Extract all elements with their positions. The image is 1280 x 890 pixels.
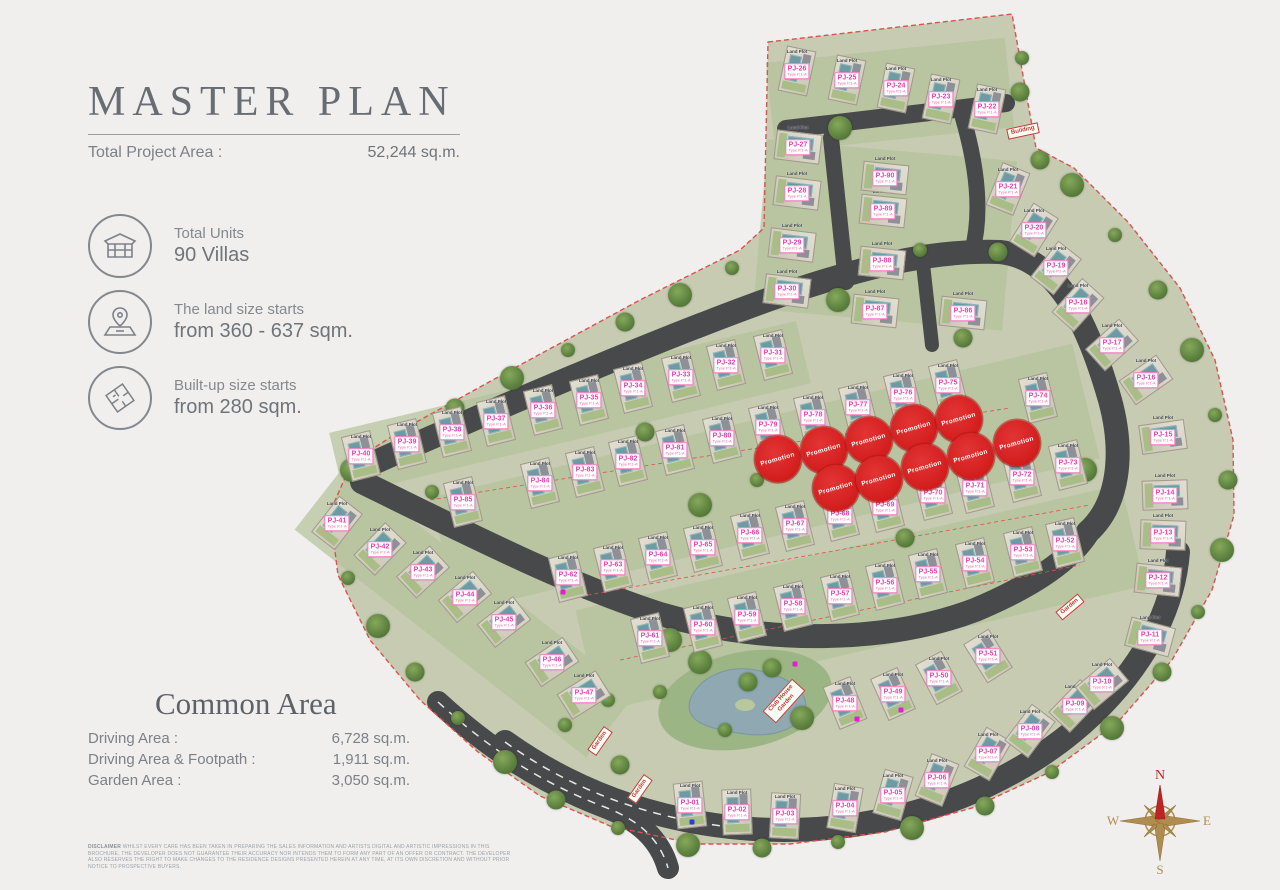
plot-type: Type P.1-A — [533, 411, 552, 416]
land-plot-caption: Land Plot — [865, 289, 886, 294]
lawn-icon — [971, 118, 996, 131]
plot-label: PJ-87Type P.1-A — [862, 303, 887, 319]
plot-label: PJ-81Type P.1-A — [662, 442, 687, 458]
plot-type: Type P.1-A — [1013, 553, 1032, 558]
title-divider — [88, 134, 460, 135]
lawn-icon — [830, 818, 855, 830]
land-plot-caption: Land Plot — [875, 563, 896, 568]
tree-icon — [1149, 281, 1168, 300]
plot-label: PJ-13Type P.1-A — [1150, 527, 1175, 543]
stat-built-up: Built-up size starts from 280 sqm. — [88, 366, 302, 430]
tree-icon — [1011, 83, 1030, 102]
plot-type: Type P.1-A — [1065, 707, 1084, 712]
plot-label: PJ-86Type P.1-A — [950, 305, 975, 321]
house-icon — [88, 214, 152, 278]
land-plot-caption: Land Plot — [787, 171, 808, 176]
land-plot-caption: Land Plot — [938, 363, 959, 368]
common-area-heading: Common Area — [155, 686, 337, 722]
common-area-row: Garden Area : 3,050 sq.m. — [88, 772, 410, 789]
plot-type: Type P.1-A — [574, 696, 593, 701]
land-plot-caption: Land Plot — [1055, 521, 1076, 526]
plot-type: Type P.1-A — [740, 536, 759, 541]
plot-type: Type P.1-A — [542, 663, 561, 668]
plot-type: Type P.1-A — [875, 508, 894, 513]
stat-value: from 280 sqm. — [174, 396, 302, 419]
plot-label: PJ-07Type P.1-A — [975, 746, 1000, 762]
plot-label: PJ-71Type P.1-A — [962, 480, 987, 496]
plot-type: Type P.1-A — [785, 527, 804, 532]
plot-label: PJ-78Type P.1-A — [800, 409, 825, 425]
plot-label: PJ-26Type P.1-A — [784, 63, 809, 79]
tree-icon — [831, 835, 845, 849]
tree-icon — [739, 673, 758, 692]
stat-label: Total Units — [174, 225, 249, 242]
land-plot-caption: Land Plot — [693, 525, 714, 530]
lawn-icon — [925, 108, 950, 121]
land-plot-caption: Land Plot — [893, 373, 914, 378]
plot-type: Type P.1-A — [830, 517, 849, 522]
plot-type: Type P.1-A — [998, 190, 1017, 195]
promotion-text: Promotion — [861, 471, 897, 487]
plot-type: Type P.1-A — [693, 628, 712, 633]
plot-label: PJ-33Type P.1-A — [668, 369, 693, 385]
plot-type: Type P.1-A — [875, 179, 894, 184]
plot-label: PJ-84Type P.1-A — [527, 475, 552, 491]
promotion-text: Promotion — [907, 459, 943, 475]
plot-type: Type P.1-A — [1102, 346, 1121, 351]
plot-label: PJ-53Type P.1-A — [1010, 544, 1035, 560]
plot-label: PJ-60Type P.1-A — [690, 619, 715, 635]
land-plot-caption: Land Plot — [1155, 473, 1176, 478]
compass-w-label: W — [1107, 813, 1120, 828]
land-plot-caption: Land Plot — [665, 428, 686, 433]
plot-label: PJ-51Type P.1-A — [975, 648, 1000, 664]
land-plot-caption: Land Plot — [648, 535, 669, 540]
plot-label: PJ-21Type P.1-A — [995, 181, 1020, 197]
land-plot-caption: Land Plot — [1013, 530, 1034, 535]
plot-label: PJ-52Type P.1-A — [1052, 535, 1077, 551]
plot-label: PJ-03Type P.1-A — [772, 808, 797, 824]
plot-type: Type P.1-A — [1153, 536, 1172, 541]
stat-value: 90 Villas — [174, 244, 249, 267]
tree-icon — [826, 288, 850, 312]
land-plot-caption: Land Plot — [716, 343, 737, 348]
lawn-icon — [772, 827, 796, 836]
land-plot-caption: Land Plot — [803, 395, 824, 400]
lawn-icon — [876, 803, 901, 817]
plot-type: Type P.1-A — [873, 212, 892, 217]
tree-icon — [500, 366, 524, 390]
plot-label: PJ-28Type P.1-A — [784, 185, 809, 201]
plot-label: PJ-56Type P.1-A — [872, 577, 897, 593]
land-plot-caption: Land Plot — [835, 681, 856, 686]
plot-label: PJ-25Type P.1-A — [834, 72, 859, 88]
utility-dot — [690, 820, 695, 825]
common-area-row: Driving Area & Footpath : 1,911 sq.m. — [88, 751, 410, 768]
utility-dot — [855, 717, 860, 722]
common-area-value: 6,728 sq.m. — [332, 730, 410, 747]
disclaimer-label: DISCLAIMER — [88, 844, 121, 850]
plot-label: PJ-47Type P.1-A — [571, 687, 596, 703]
land-plot-caption: Land Plot — [712, 416, 733, 421]
plot-label: PJ-32Type P.1-A — [713, 357, 738, 373]
plot-label: PJ-06Type P.1-A — [924, 772, 949, 788]
tree-icon — [1210, 538, 1234, 562]
plot-label: PJ-77Type P.1-A — [845, 399, 870, 415]
land-plot-caption: Land Plot — [775, 794, 796, 799]
tree-icon — [1219, 471, 1238, 490]
tree-icon — [718, 723, 732, 737]
plot-type: Type P.1-A — [931, 100, 950, 105]
plot-type: Type P.1-A — [787, 194, 806, 199]
plot-type: Type P.1-A — [875, 586, 894, 591]
land-plot-caption: Land Plot — [785, 504, 806, 509]
land-plot-caption: Land Plot — [1153, 513, 1174, 518]
promotion-text: Promotion — [806, 442, 842, 458]
land-plot-caption: Land Plot — [1028, 376, 1049, 381]
plot-type: Type P.1-A — [830, 597, 849, 602]
plot-type: Type P.1-A — [1068, 306, 1087, 311]
land-plot-caption: Land Plot — [1068, 283, 1089, 288]
land-plot-caption: Land Plot — [575, 450, 596, 455]
tree-icon — [688, 493, 712, 517]
plot-type: Type P.1-A — [575, 473, 594, 478]
promotion-text: Promotion — [999, 435, 1035, 451]
plot-type: Type P.1-A — [1058, 466, 1077, 471]
tree-icon — [896, 529, 915, 548]
utility-dot — [899, 708, 904, 713]
tree-icon — [753, 839, 772, 858]
tree-icon — [790, 706, 814, 730]
land-plot-caption: Land Plot — [978, 732, 999, 737]
stat-value: from 360 - 637 sqm. — [174, 320, 353, 343]
land-plot-caption: Land Plot — [618, 439, 639, 444]
land-plot-caption: Land Plot — [787, 49, 808, 54]
tree-icon — [1191, 605, 1205, 619]
land-plot-caption: Land Plot — [875, 156, 896, 161]
tree-icon — [725, 261, 739, 275]
compass-north-needle — [1155, 785, 1165, 819]
tree-icon — [913, 243, 927, 257]
tree-icon — [763, 659, 782, 678]
land-plot-caption: Land Plot — [1058, 443, 1079, 448]
tree-icon — [1100, 716, 1124, 740]
land-plot-caption: Land Plot — [931, 77, 952, 82]
lawn-icon — [781, 80, 806, 93]
land-plot-caption: Land Plot — [640, 616, 661, 621]
plot-label: PJ-76Type P.1-A — [890, 387, 915, 403]
plot-type: Type P.1-A — [929, 679, 948, 684]
land-plot-caption: Land Plot — [927, 758, 948, 763]
land-plot-caption: Land Plot — [1148, 558, 1169, 563]
land-pin-icon — [88, 290, 152, 354]
plot-label: PJ-12Type P.1-A — [1145, 572, 1170, 588]
plot-label: PJ-20Type P.1-A — [1021, 222, 1046, 238]
plot-label: PJ-90Type P.1-A — [872, 170, 897, 186]
plot-type: Type P.1-A — [671, 378, 690, 383]
land-plot-caption: Land Plot — [783, 584, 804, 589]
plot-type: Type P.1-A — [848, 408, 867, 413]
promotion-text: Promotion — [941, 411, 977, 427]
land-plot-caption: Land Plot — [1020, 709, 1041, 714]
land-plot-caption: Land Plot — [929, 656, 950, 661]
land-plot-caption: Land Plot — [1024, 208, 1045, 213]
promotion-text: Promotion — [760, 451, 796, 467]
plot-type: Type P.1-A — [1140, 638, 1159, 643]
plot-label: PJ-72Type P.1-A — [1009, 469, 1034, 485]
plot-type: Type P.1-A — [787, 72, 806, 77]
total-project-area-row: Total Project Area : 52,244 sq.m. — [88, 144, 460, 162]
plot-label: PJ-08Type P.1-A — [1017, 723, 1042, 739]
promotion-badge: Promotion — [813, 465, 859, 511]
plot-label: PJ-89Type P.1-A — [870, 203, 895, 219]
plot-label: PJ-83Type P.1-A — [572, 464, 597, 480]
plot-label: PJ-24Type P.1-A — [883, 80, 908, 96]
land-plot-caption: Land Plot — [977, 87, 998, 92]
common-area-value: 3,050 sq.m. — [332, 772, 410, 789]
land-plot-caption: Land Plot — [1092, 662, 1113, 667]
tree-icon — [616, 313, 635, 332]
plot-type: Type P.1-A — [938, 386, 957, 391]
plot-label: PJ-49Type P.1-A — [880, 686, 905, 702]
tree-icon — [676, 833, 700, 857]
plot-type: Type P.1-A — [763, 356, 782, 361]
info-panel: MASTER PLAN Total Project Area : 52,244 … — [0, 0, 500, 890]
promotion-badge: Promotion — [902, 444, 948, 490]
plot-label: PJ-31Type P.1-A — [760, 347, 785, 363]
plot-type: Type P.1-A — [965, 489, 984, 494]
tree-icon — [668, 283, 692, 307]
land-plot-caption: Land Plot — [680, 783, 701, 788]
land-plot-caption: Land Plot — [623, 366, 644, 371]
plot-label: PJ-67Type P.1-A — [782, 518, 807, 534]
tree-icon — [547, 791, 566, 810]
disclaimer: DISCLAIMER WHILST EVERY CARE HAS BEEN TA… — [88, 844, 512, 870]
plot-label: PJ-65Type P.1-A — [690, 539, 715, 555]
plot-type: Type P.1-A — [835, 704, 854, 709]
compass-s-label: S — [1156, 862, 1163, 877]
pond-island — [735, 699, 755, 711]
plot-type: Type P.1-A — [758, 428, 777, 433]
floorplan-icon — [88, 366, 152, 430]
plot-type: Type P.1-A — [893, 396, 912, 401]
plot-label: PJ-62Type P.1-A — [555, 569, 580, 585]
utility-dot — [793, 662, 798, 667]
land-plot-caption: Land Plot — [848, 385, 869, 390]
plot-label: PJ-16Type P.1-A — [1133, 372, 1158, 388]
plot-type: Type P.1-A — [775, 817, 794, 822]
tree-icon — [828, 116, 852, 140]
land-plot-caption: Land Plot — [1046, 246, 1067, 251]
land-plot-caption: Land Plot — [542, 640, 563, 645]
land-plot-caption: Land Plot — [886, 66, 907, 71]
plot-label: PJ-11Type P.1-A — [1137, 629, 1162, 645]
common-area-label: Driving Area & Footpath : — [88, 751, 256, 768]
land-plot-caption: Land Plot — [758, 405, 779, 410]
promotion-badge: Promotion — [856, 456, 902, 502]
plot-label: PJ-34Type P.1-A — [620, 380, 645, 396]
tree-icon — [561, 343, 575, 357]
plot-type: Type P.1-A — [1046, 269, 1065, 274]
compass-n-label: N — [1155, 768, 1165, 783]
plot-label: PJ-15Type P.1-A — [1150, 429, 1175, 445]
plot-type: Type P.1-A — [782, 246, 801, 251]
land-plot-caption: Land Plot — [558, 555, 579, 560]
plot-type: Type P.1-A — [623, 389, 642, 394]
plot-label: PJ-30Type P.1-A — [774, 283, 799, 299]
plot-label: PJ-64Type P.1-A — [645, 549, 670, 565]
utility-dot — [561, 590, 566, 595]
plot-type: Type P.1-A — [716, 366, 735, 371]
plot-type: Type P.1-A — [579, 401, 598, 406]
total-project-area-label: Total Project Area : — [88, 144, 222, 162]
plot-type: Type P.1-A — [693, 548, 712, 553]
common-area-label: Driving Area : — [88, 730, 178, 747]
land-plot-caption: Land Plot — [727, 790, 748, 795]
lawn-icon — [725, 824, 749, 833]
land-plot-caption: Land Plot — [579, 378, 600, 383]
plot-type: Type P.1-A — [978, 755, 997, 760]
plot-type: Type P.1-A — [1148, 581, 1167, 586]
lawn-icon — [880, 97, 905, 110]
plot-label: PJ-55Type P.1-A — [915, 566, 940, 582]
compass-e-label: E — [1203, 813, 1211, 828]
tree-icon — [1153, 663, 1172, 682]
plot-label: PJ-74Type P.1-A — [1025, 390, 1050, 406]
tree-icon — [1180, 338, 1204, 362]
disclaimer-text: WHILST EVERY CARE HAS BEEN TAKEN IN PREP… — [88, 844, 510, 870]
promotion-badge: Promotion — [994, 420, 1040, 466]
land-plot-caption: Land Plot — [763, 333, 784, 338]
plot-type: Type P.1-A — [872, 264, 891, 269]
stat-total-units: Total Units 90 Villas — [88, 214, 249, 278]
promotion-text: Promotion — [953, 448, 989, 464]
plot-label: PJ-75Type P.1-A — [935, 377, 960, 393]
plot-type: Type P.1-A — [1092, 685, 1111, 690]
plot-label: PJ-10Type P.1-A — [1089, 676, 1114, 692]
plot-type: Type P.1-A — [835, 809, 854, 814]
plot-type: Type P.1-A — [530, 484, 549, 489]
tree-icon — [558, 718, 572, 732]
tree-icon — [900, 816, 924, 840]
plot-type: Type P.1-A — [558, 578, 577, 583]
plot-type: Type P.1-A — [777, 292, 796, 297]
land-plot-caption: Land Plot — [998, 167, 1019, 172]
land-plot-caption: Land Plot — [978, 634, 999, 639]
plot-label: PJ-66Type P.1-A — [737, 527, 762, 543]
land-plot-caption: Land Plot — [835, 786, 856, 791]
plot-type: Type P.1-A — [783, 607, 802, 612]
tree-icon — [1015, 51, 1029, 65]
plot-label: PJ-54Type P.1-A — [962, 555, 987, 571]
plot-label: PJ-79Type P.1-A — [755, 419, 780, 435]
land-plot-caption: Land Plot — [533, 388, 554, 393]
plot-type: Type P.1-A — [918, 575, 937, 580]
land-plot-caption: Land Plot — [737, 595, 758, 600]
promotion-text: Promotion — [851, 432, 887, 448]
stat-label: The land size starts — [174, 301, 353, 318]
promotion-badge: Promotion — [755, 436, 801, 482]
plot-label: PJ-01Type P.1-A — [677, 797, 702, 813]
plot-type: Type P.1-A — [953, 314, 972, 319]
page-title: MASTER PLAN — [88, 78, 488, 126]
promotion-badge: Promotion — [948, 433, 994, 479]
land-plot-caption: Land Plot — [1153, 415, 1174, 420]
plot-label: PJ-14Type P.1-A — [1152, 487, 1177, 503]
plot-label: PJ-59Type P.1-A — [734, 609, 759, 625]
plot-type: Type P.1-A — [883, 695, 902, 700]
plot-label: PJ-73Type P.1-A — [1055, 457, 1080, 473]
plot-label: PJ-63Type P.1-A — [600, 559, 625, 575]
plot-type: Type P.1-A — [865, 312, 884, 317]
plot-type: Type P.1-A — [1153, 438, 1172, 443]
plot-label: PJ-29Type P.1-A — [779, 237, 804, 253]
promotion-text: Promotion — [818, 480, 854, 496]
plot-label: PJ-58Type P.1-A — [780, 598, 805, 614]
tree-icon — [1031, 151, 1050, 170]
plot-label: PJ-48Type P.1-A — [832, 695, 857, 711]
plot-label: PJ-18Type P.1-A — [1065, 297, 1090, 313]
land-plot-caption: Land Plot — [788, 125, 809, 130]
plot-type: Type P.1-A — [803, 418, 822, 423]
tree-icon — [1060, 173, 1084, 197]
plot-type: Type P.1-A — [1155, 496, 1174, 501]
plot-type: Type P.1-A — [965, 564, 984, 569]
plot-type: Type P.1-A — [603, 568, 622, 573]
land-plot-caption: Land Plot — [883, 773, 904, 778]
plot-label: PJ-02Type P.1-A — [724, 804, 749, 820]
plot-type: Type P.1-A — [648, 558, 667, 563]
plot-label: PJ-80Type P.1-A — [709, 430, 734, 446]
plot-label: PJ-23Type P.1-A — [928, 91, 953, 107]
plot-type: Type P.1-A — [1055, 544, 1074, 549]
tree-icon — [1045, 765, 1059, 779]
tree-icon — [1108, 228, 1122, 242]
land-plot-caption: Land Plot — [883, 672, 904, 677]
plot-type: Type P.1-A — [788, 148, 807, 153]
common-area-value: 1,911 sq.m. — [333, 751, 410, 768]
plot-label: PJ-19Type P.1-A — [1043, 260, 1068, 276]
plot-type: Type P.1-A — [978, 657, 997, 662]
plot-type: Type P.1-A — [886, 89, 905, 94]
plot-label: PJ-46Type P.1-A — [539, 654, 564, 670]
land-plot-caption: Land Plot — [777, 269, 798, 274]
plot-type: Type P.1-A — [837, 81, 856, 86]
land-plot-caption: Land Plot — [965, 541, 986, 546]
plot-type: Type P.1-A — [927, 781, 946, 786]
plot-type: Type P.1-A — [1020, 732, 1039, 737]
promotion-text: Promotion — [896, 420, 932, 436]
land-plot-caption: Land Plot — [872, 241, 893, 246]
land-plot-caption: Land Plot — [782, 223, 803, 228]
stat-land-size: The land size starts from 360 - 637 sqm. — [88, 290, 353, 354]
plot-label: PJ-05Type P.1-A — [880, 787, 905, 803]
plot-label: PJ-88Type P.1-A — [869, 255, 894, 271]
land-plot-caption: Land Plot — [671, 355, 692, 360]
plot-label: PJ-04Type P.1-A — [832, 800, 857, 816]
plot-type: Type P.1-A — [883, 796, 902, 801]
land-plot-caption: Land Plot — [603, 545, 624, 550]
tree-icon — [611, 756, 630, 775]
land-plot-caption: Land Plot — [1136, 358, 1157, 363]
tree-icon — [688, 650, 712, 674]
common-area-label: Garden Area : — [88, 772, 181, 789]
tree-icon — [976, 797, 995, 816]
plot-type: Type P.1-A — [712, 439, 731, 444]
tree-icon — [1208, 408, 1222, 422]
plot-label: PJ-57Type P.1-A — [827, 588, 852, 604]
total-project-area-value: 52,244 sq.m. — [368, 144, 461, 162]
